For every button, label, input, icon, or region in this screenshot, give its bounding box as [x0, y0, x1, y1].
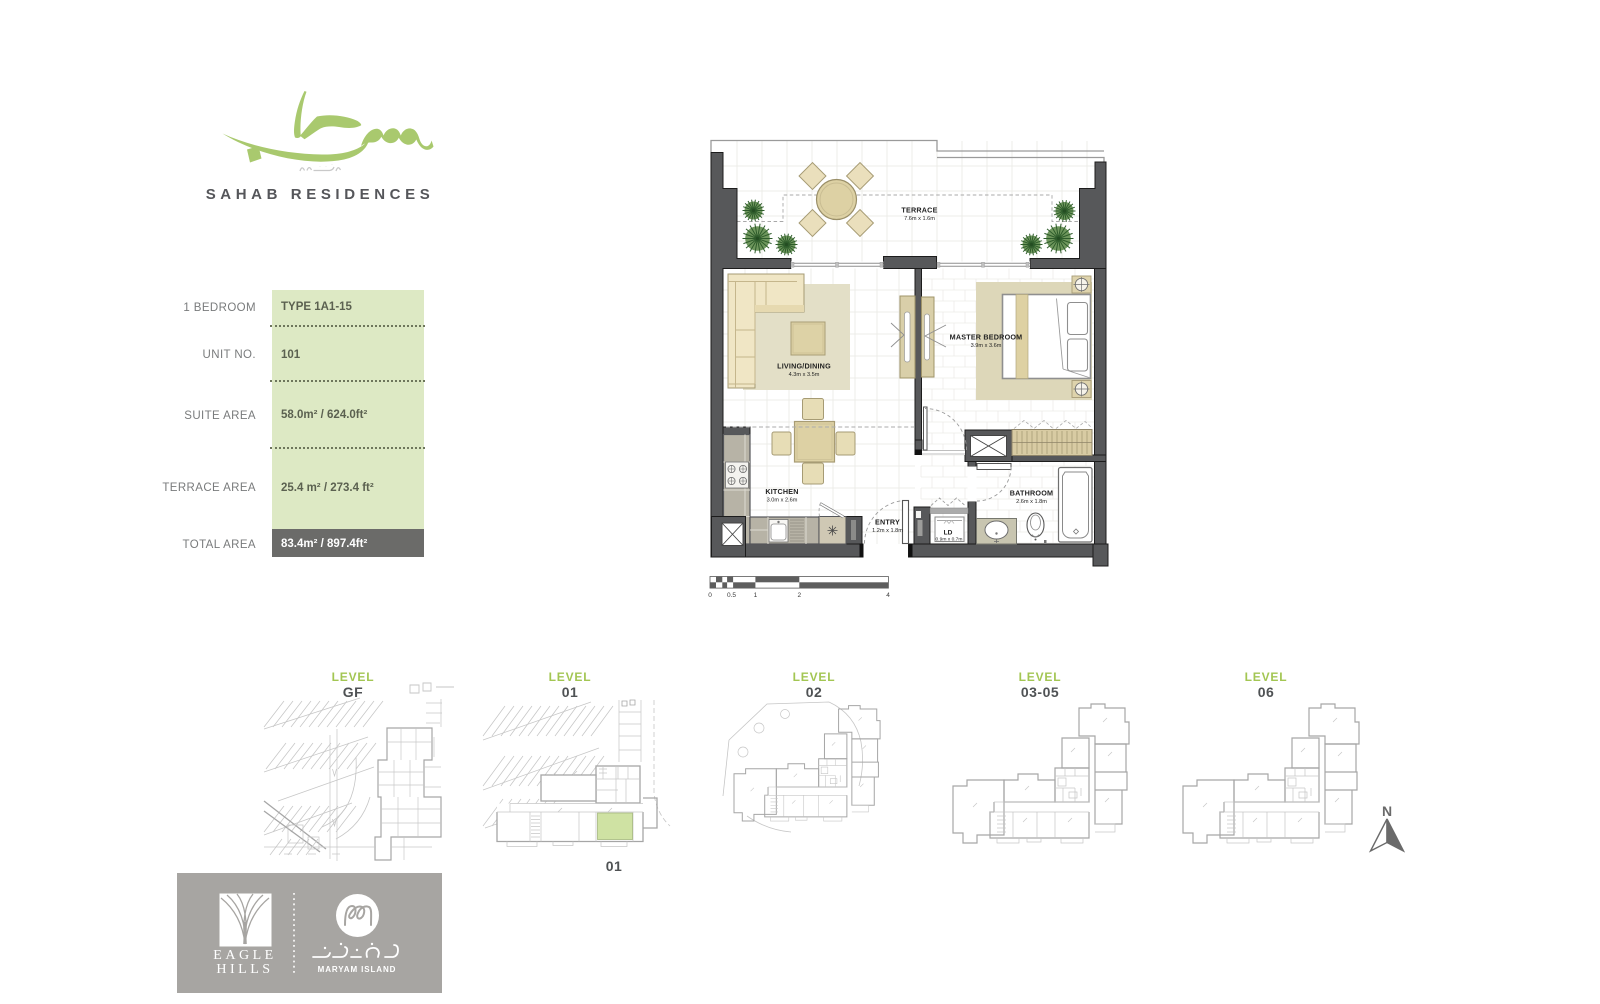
svg-text:KITCHEN: KITCHEN	[765, 487, 798, 496]
svg-text:0: 0	[708, 592, 712, 599]
svg-text:N: N	[1382, 803, 1392, 819]
svg-text:LIVING/DINING: LIVING/DINING	[777, 362, 831, 371]
svg-text:ENTRY: ENTRY	[875, 518, 900, 527]
svg-text:0.9m x 0.7m: 0.9m x 0.7m	[936, 537, 963, 543]
svg-text:TERRACE: TERRACE	[901, 206, 937, 215]
svg-text:LD: LD	[944, 530, 953, 537]
svg-text:7.6m x 1.6m: 7.6m x 1.6m	[904, 216, 935, 222]
svg-text:3.9m x 3.6m: 3.9m x 3.6m	[971, 343, 1002, 349]
svg-text:2: 2	[797, 592, 801, 599]
svg-text:0.5: 0.5	[727, 592, 736, 599]
svg-text:4: 4	[886, 592, 890, 599]
svg-text:4.3m x 3.5m: 4.3m x 3.5m	[789, 372, 820, 378]
svg-text:1.2m x 1.8m: 1.2m x 1.8m	[872, 528, 903, 534]
svg-text:2.6m x 1.8m: 2.6m x 1.8m	[1016, 499, 1047, 505]
svg-text:MASTER BEDROOM: MASTER BEDROOM	[950, 333, 1023, 342]
svg-text:1: 1	[754, 592, 758, 599]
svg-text:BATHROOM: BATHROOM	[1010, 489, 1053, 498]
svg-text:3.0m x 2.6m: 3.0m x 2.6m	[767, 497, 798, 503]
